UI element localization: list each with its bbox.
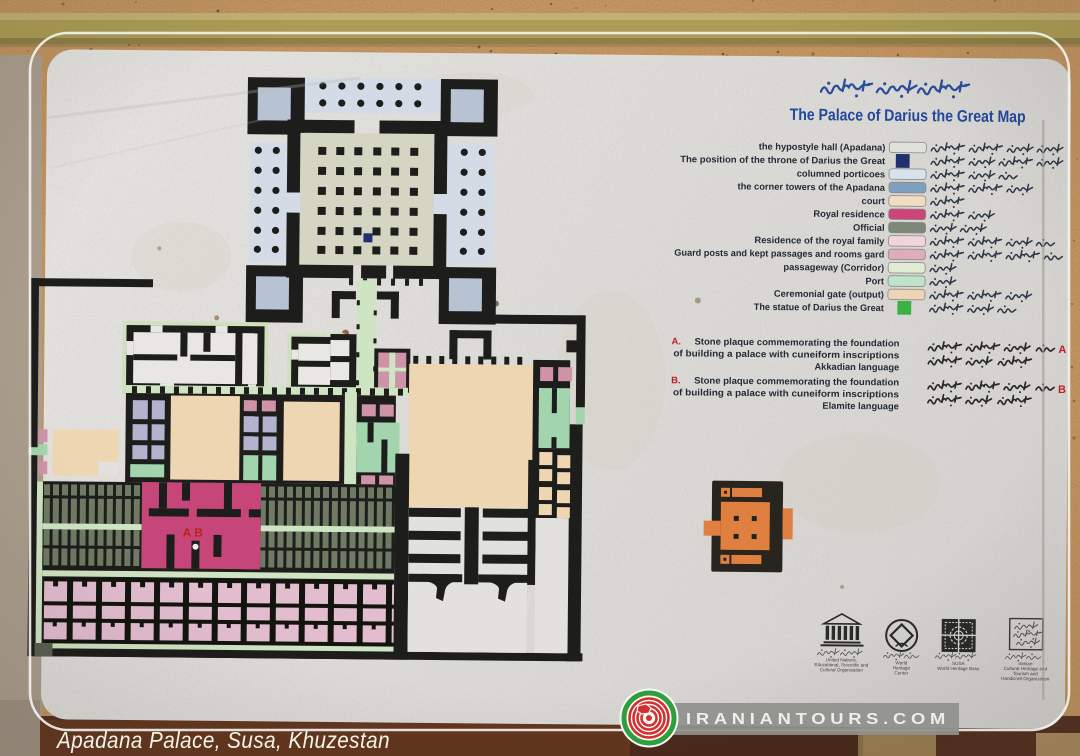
svg-text:Apadana Palace, Susa, Khuzesta: Apadana Palace, Susa, Khuzestan — [55, 727, 390, 753]
svg-text:IRANIANTOURS.COM: IRANIANTOURS.COM — [686, 711, 950, 728]
